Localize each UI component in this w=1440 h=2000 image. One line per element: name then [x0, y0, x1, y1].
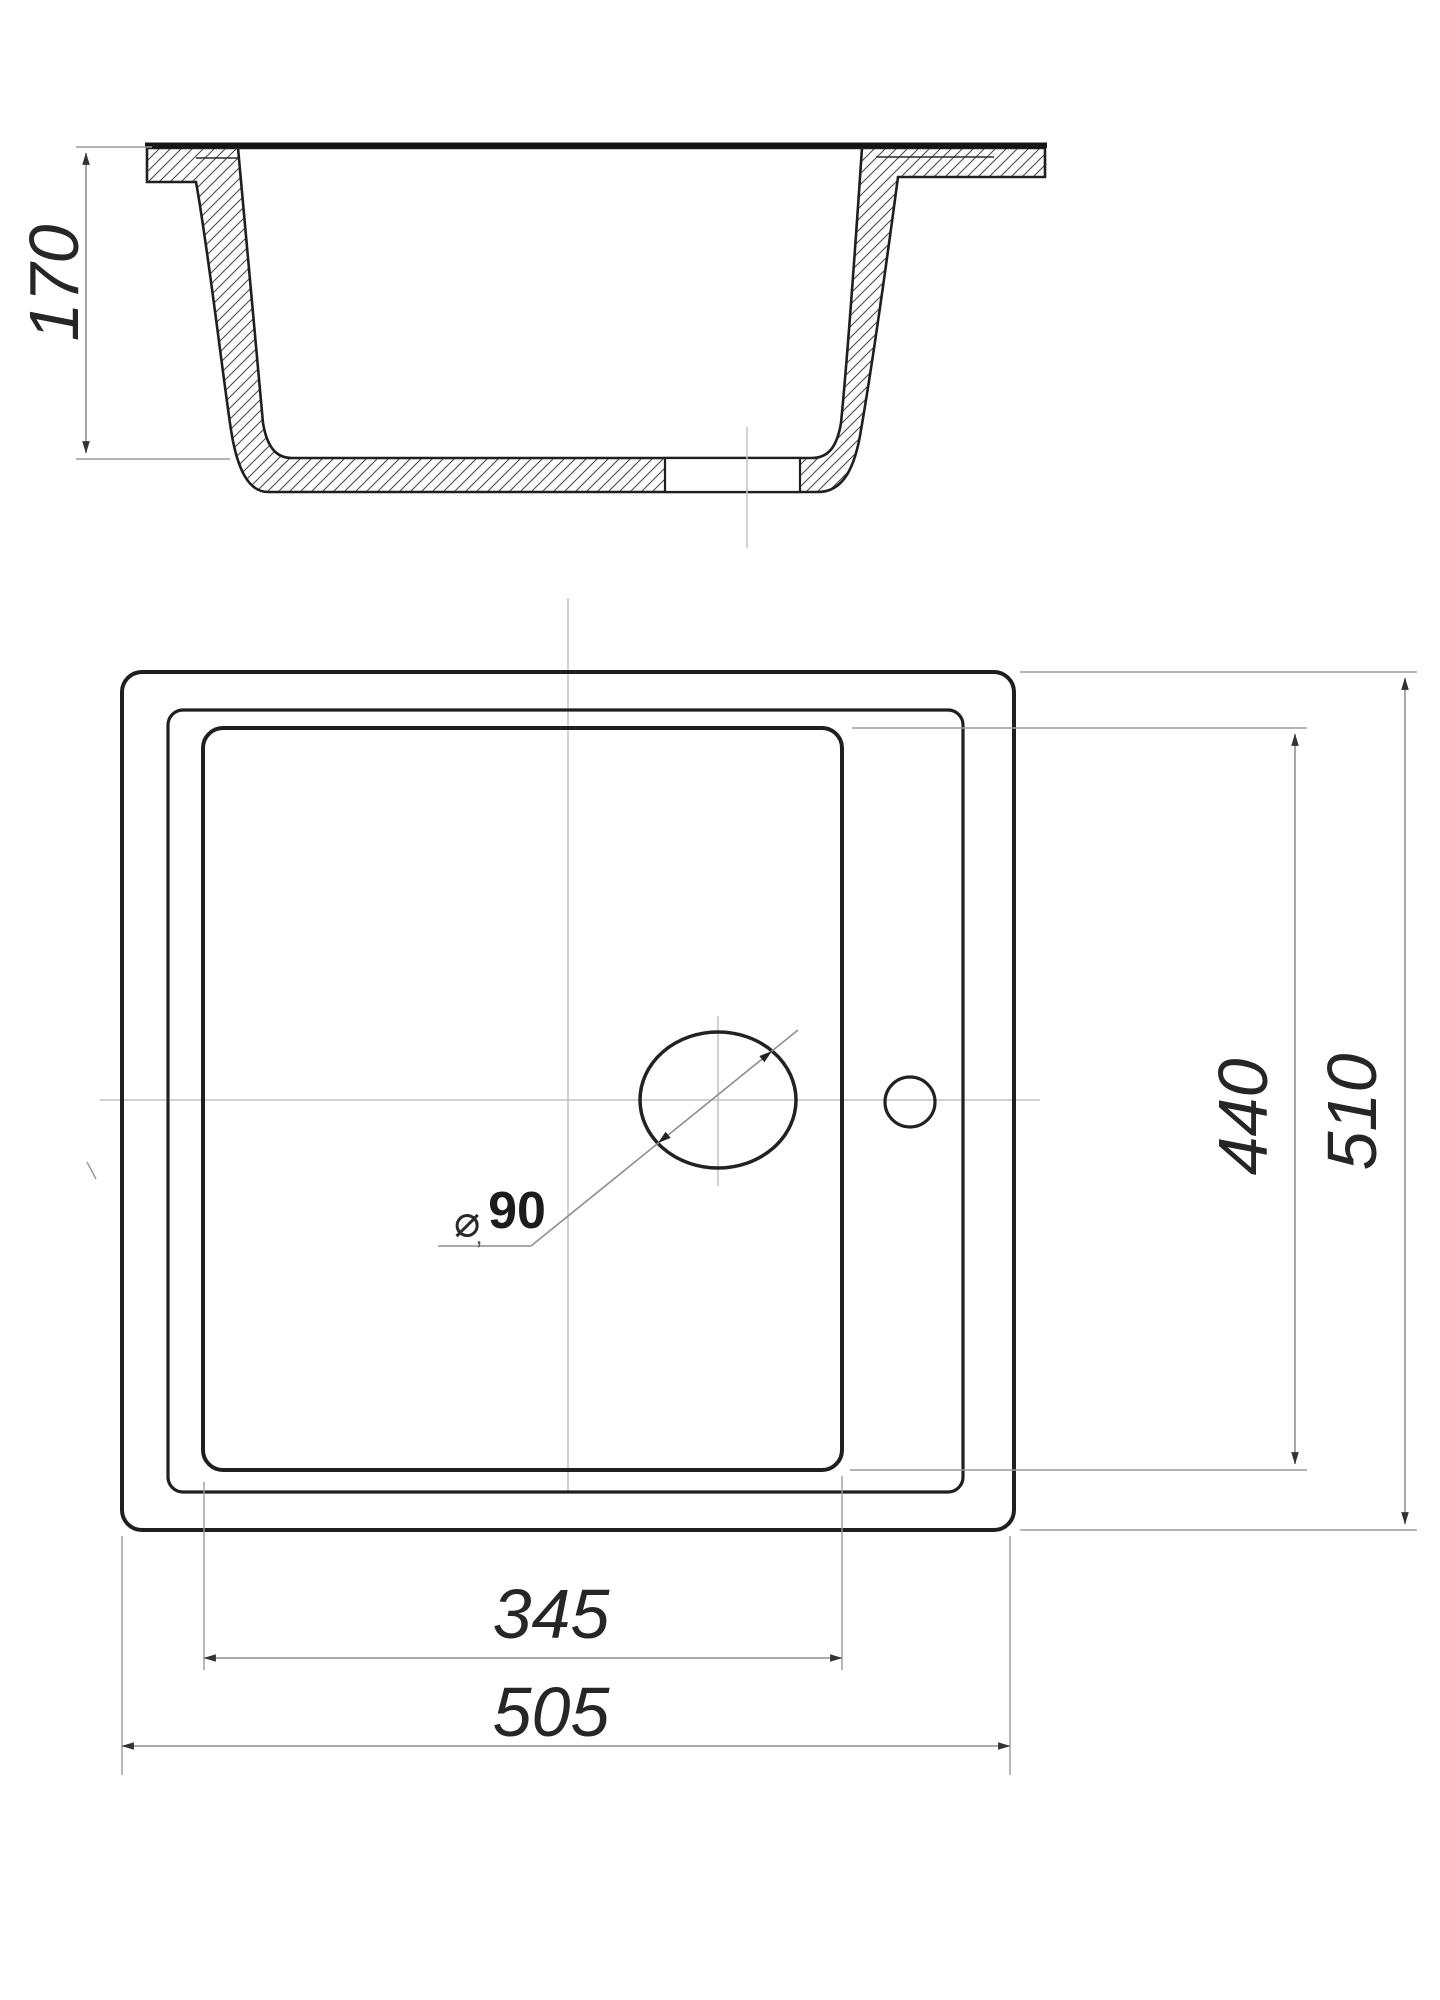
section-drain-recess: [665, 458, 800, 492]
dimension-bowl-width-345: 345: [204, 1476, 842, 1670]
dimension-label-bowl-width: 345: [493, 1575, 611, 1653]
sink-technical-drawing: 170 ⌀ 90 ,: [0, 0, 1440, 2000]
section-view: [145, 143, 1047, 549]
technical-drawing-sheet: 170 ⌀ 90 ,: [0, 0, 1440, 2000]
dimension-label-bowl-length: 440: [1204, 1059, 1282, 1176]
dimension-label-overall-width: 505: [493, 1673, 611, 1751]
section-rim-line: [145, 143, 1047, 149]
stray-tick: [87, 1162, 96, 1179]
drain-diameter-value: 90: [488, 1182, 546, 1240]
dimension-overall-width-505: 505: [122, 1536, 1010, 1775]
stray-mark: ,: [475, 1220, 482, 1250]
dimension-label-depth: 170: [15, 225, 93, 342]
dimension-label-overall-length: 510: [1313, 1054, 1391, 1171]
section-body-hatched: [147, 148, 1045, 492]
drain-diameter-leader: ⌀ 90 ,: [438, 1030, 798, 1250]
dimension-bowl-length-440: 440: [850, 728, 1307, 1470]
faucet-hole: [885, 1077, 935, 1127]
plan-bowl-edge: [203, 728, 842, 1470]
plan-view: ⌀ 90 ,: [87, 598, 1040, 1530]
